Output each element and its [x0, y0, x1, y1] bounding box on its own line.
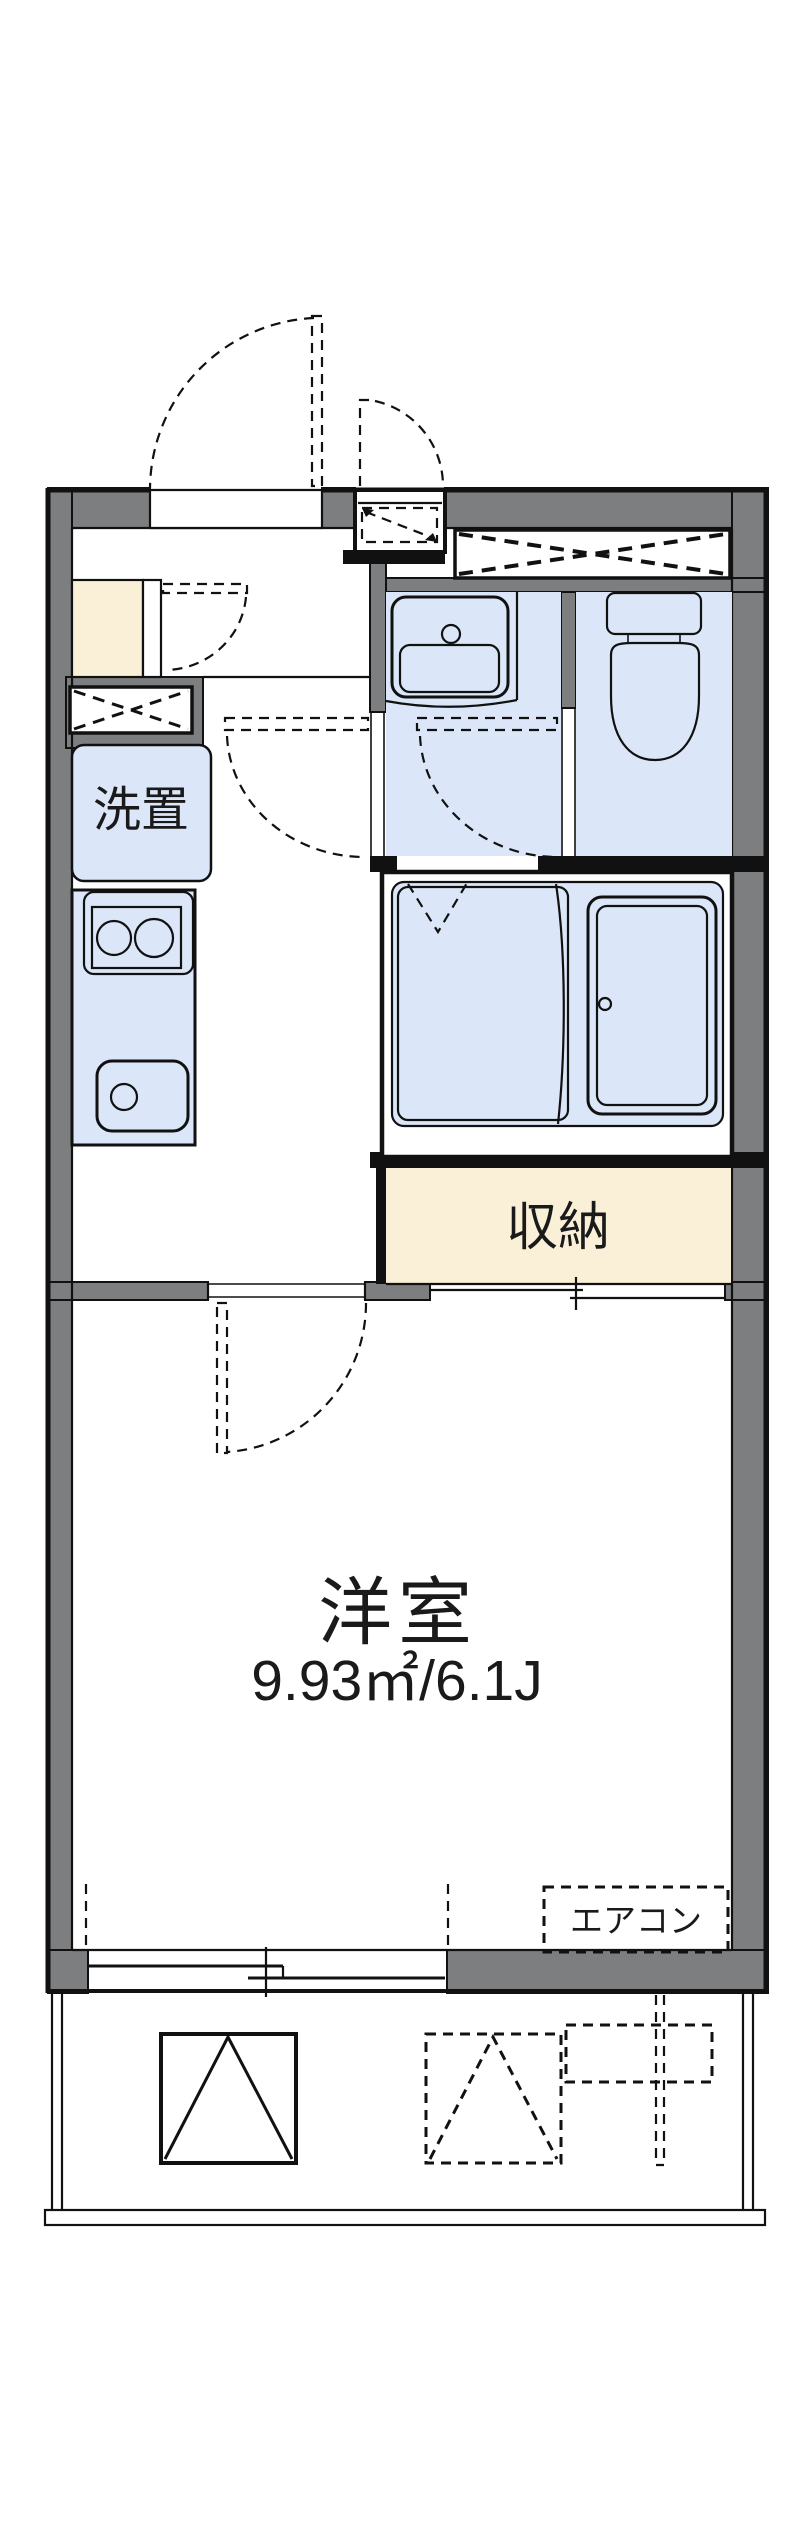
- balcony-bottom-slab: [45, 2210, 765, 2225]
- floorplan-svg: 洗置: [0, 0, 800, 2539]
- room-door-leaf: [217, 1303, 227, 1453]
- balcony-partition-line: [656, 1995, 664, 2165]
- laundry-area: 洗置: [72, 745, 211, 881]
- corridor-door-leaf: [225, 718, 368, 730]
- closet: 収納: [386, 1168, 731, 1310]
- western-room: 洋室 9.93㎡/6.1J エアコン: [86, 1282, 728, 1997]
- toilet-room: [562, 592, 732, 856]
- hatch-square: [161, 2034, 296, 2163]
- aircon-label: エアコン: [570, 1902, 702, 1939]
- floorplan-page: 洗置: [0, 0, 800, 2539]
- front-door-recess: [150, 492, 322, 528]
- balcony-side-rails: [52, 1994, 753, 2210]
- corridor-door-swing-arc: [227, 736, 362, 857]
- front-door-leaf: [312, 316, 322, 486]
- entrance-floor: [72, 580, 143, 677]
- dashed-hatch-triangle-icon: [430, 2037, 557, 2159]
- bath-top-wall-right: [538, 856, 768, 872]
- bottom-wall-right-pier: [447, 1950, 768, 1993]
- toilet-floor: [576, 592, 732, 856]
- side-door-swing-arc: [375, 401, 443, 487]
- bath-top-wall-left: [370, 856, 397, 872]
- closet-left-wall: [376, 1168, 386, 1284]
- closet-label: 収納: [506, 1199, 610, 1257]
- overhead-storage-box: [455, 530, 730, 578]
- entrance-step: [143, 580, 161, 677]
- overhead-storage: [455, 530, 730, 578]
- bottom-wall-left-pier: [48, 1950, 88, 1993]
- washroom-floor: [386, 592, 561, 856]
- hall-door-swing-arc: [166, 597, 246, 670]
- washroom-toilet-wall: [561, 592, 576, 708]
- window-jamb-dashed-lines: [86, 1884, 448, 1948]
- kitchen: [72, 890, 195, 1145]
- front-door-swing-arc: [150, 318, 314, 488]
- shoe-cabinet: [70, 677, 370, 733]
- bathtub: [588, 897, 716, 1114]
- room-label: 洋室: [318, 1571, 478, 1654]
- washroom-door-opening: [371, 712, 384, 856]
- hall-door-leaf: [163, 584, 247, 593]
- top-wall-right: [445, 488, 768, 528]
- washroom: [225, 592, 561, 857]
- dashed-hatch-square: [426, 2034, 561, 2163]
- top-wall-pier: [322, 488, 355, 528]
- room-door-swing-arc: [227, 1303, 366, 1452]
- toilet-door-opening: [562, 708, 575, 856]
- balcony: [45, 1994, 765, 2225]
- bath-unit: [382, 872, 732, 1157]
- outdoor-unit-dashed-box: [566, 2025, 712, 2082]
- laundry-label: 洗置: [93, 784, 189, 837]
- right-wall: [732, 488, 768, 1993]
- room-door-threshold: [208, 1284, 365, 1297]
- hatch-triangle-icon: [165, 2037, 292, 2159]
- side-door-leaf: [360, 400, 375, 486]
- room-area-label: 9.93㎡/6.1J: [251, 1649, 543, 1713]
- hall-washroom-wall: [370, 562, 386, 712]
- sanitary-top-wall: [370, 578, 768, 592]
